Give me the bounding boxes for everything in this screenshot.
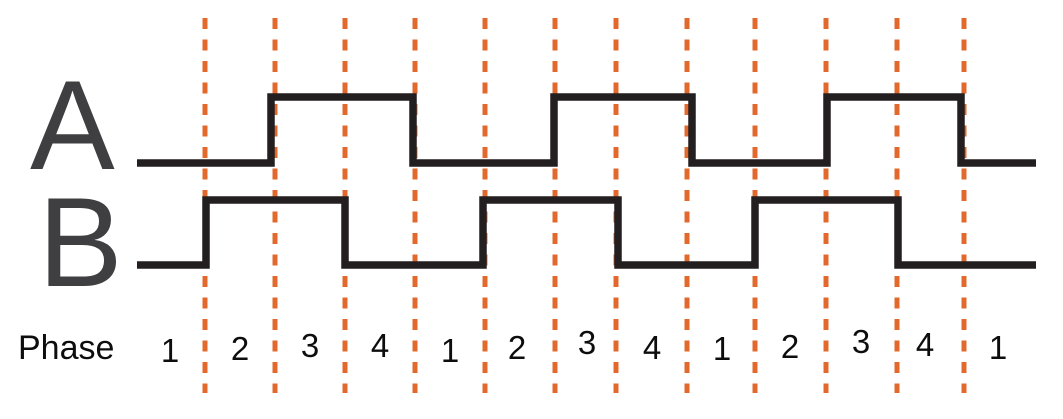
phase-number: 3 (578, 326, 596, 359)
waveform-plot (0, 0, 1063, 419)
phase-row-label: Phase (18, 331, 114, 365)
phase-number: 1 (441, 334, 459, 367)
phase-number: 3 (852, 325, 870, 358)
signal-a-waveform (137, 97, 1036, 163)
phase-number: 3 (301, 329, 319, 362)
signal-b-label: B (38, 179, 123, 306)
signal-b-waveform (137, 200, 1036, 265)
signal-a-label: A (30, 62, 115, 189)
phase-number: 4 (643, 331, 661, 364)
phase-number: 1 (713, 332, 731, 365)
phase-number: 1 (161, 334, 179, 367)
phase-number: 2 (231, 332, 249, 365)
phase-number: 4 (371, 329, 389, 362)
timing-diagram: A B Phase 1234123412341 (0, 0, 1063, 419)
phase-number: 2 (781, 330, 799, 363)
phase-number: 2 (508, 331, 526, 364)
phase-number: 4 (916, 328, 934, 361)
phase-number: 1 (989, 331, 1007, 364)
